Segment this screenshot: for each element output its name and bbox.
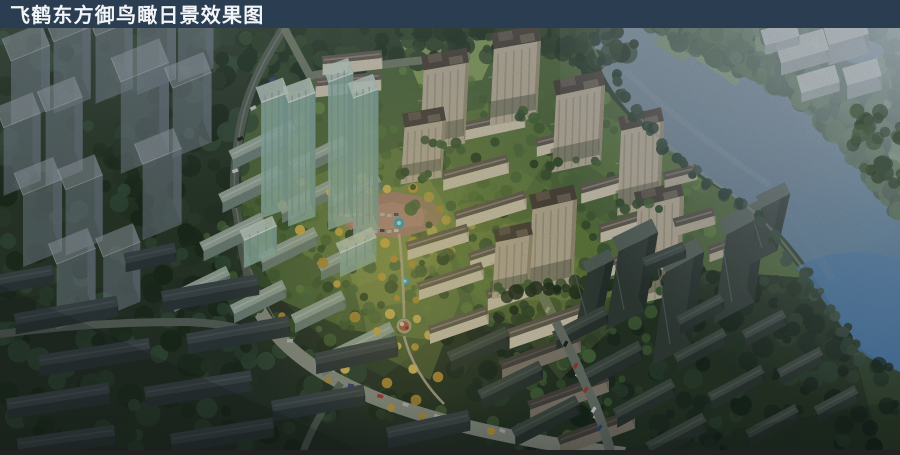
svg-text:飞鹤东方御鸟瞰日景效果图: 飞鹤东方御鸟瞰日景效果图 (10, 3, 264, 27)
